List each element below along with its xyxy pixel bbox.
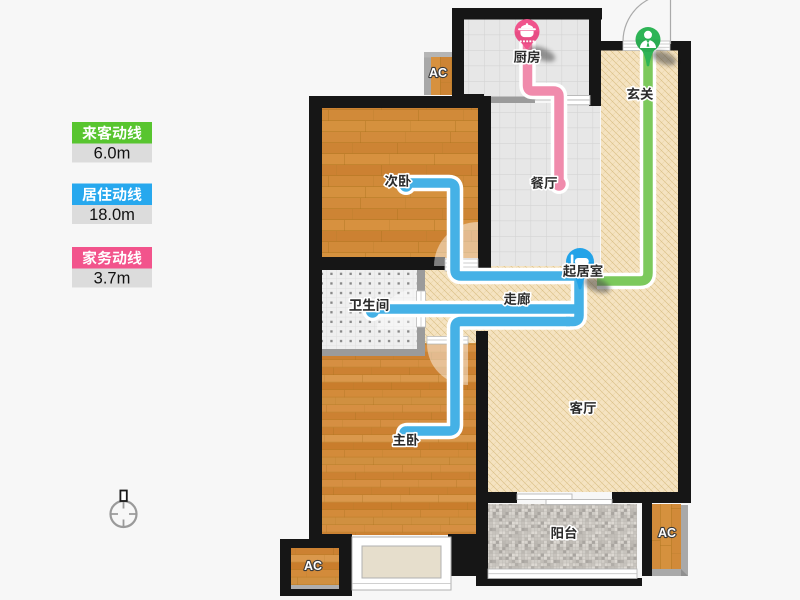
svg-text:AC: AC [658,526,676,540]
svg-text:3.7m: 3.7m [94,270,131,288]
svg-text:AC: AC [304,559,322,573]
svg-text:18.0m: 18.0m [89,206,135,224]
svg-text:6.0m: 6.0m [94,145,131,163]
svg-text:AC: AC [429,66,447,80]
